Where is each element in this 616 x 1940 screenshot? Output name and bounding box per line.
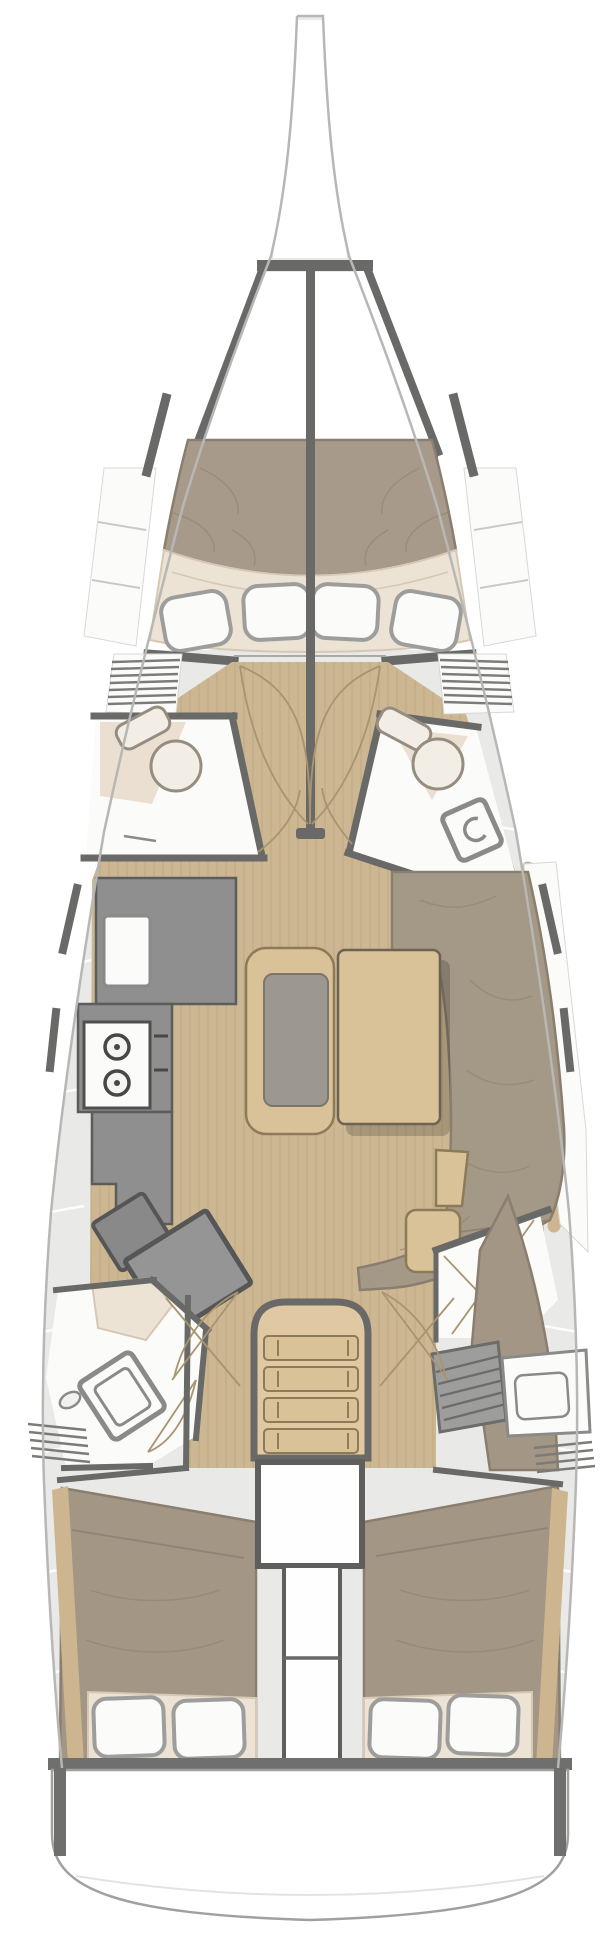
bow-interior [273, 20, 347, 258]
pillow [93, 1697, 165, 1757]
pillow [173, 1699, 245, 1759]
pillow [369, 1699, 441, 1759]
engine-trunk [284, 1566, 340, 1764]
side-wedge [436, 1150, 468, 1206]
bench-cushion [264, 974, 328, 1106]
galley-sink [104, 916, 150, 986]
transom-beam [48, 1758, 572, 1770]
salon-table [338, 950, 440, 1124]
swim-platform [52, 1770, 568, 1920]
vanity-sink [515, 1372, 570, 1420]
engine-compartment [258, 1462, 362, 1566]
pillow [447, 1695, 519, 1755]
centerline-bulkhead [306, 264, 315, 834]
transom [48, 1758, 572, 1920]
boat-floorplan-page [0, 0, 616, 1940]
boat-floorplan [0, 0, 616, 1940]
hatched-locker [432, 1342, 506, 1432]
